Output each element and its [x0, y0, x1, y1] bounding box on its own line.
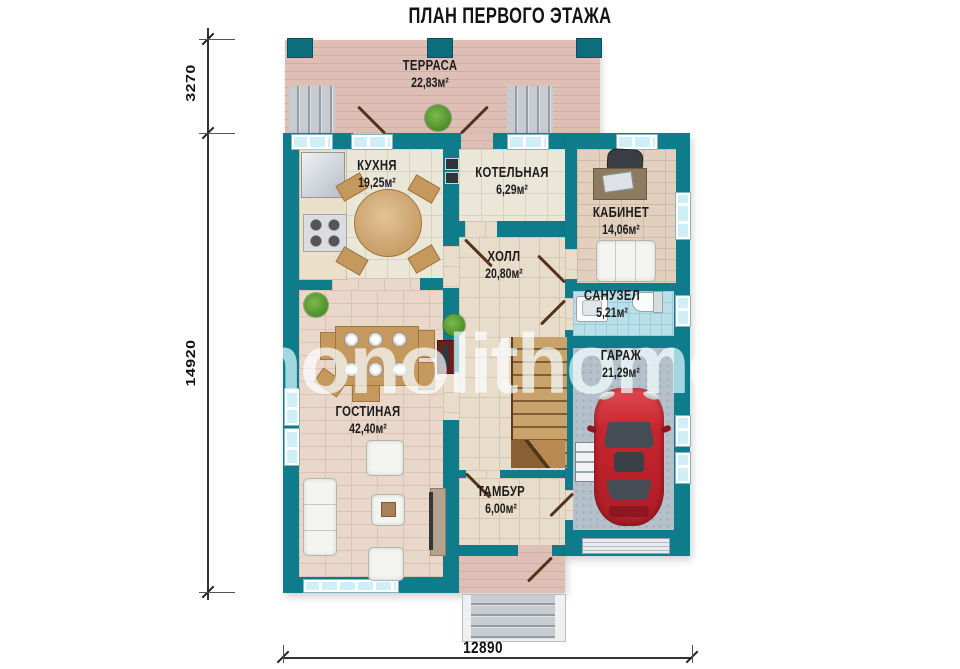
window	[675, 415, 691, 447]
office-sofa	[596, 240, 656, 282]
terrace-steps-right	[507, 86, 553, 133]
coffee-table-top	[381, 502, 396, 517]
dimension-line-left	[207, 28, 209, 600]
window	[675, 192, 691, 240]
room-label-boiler: КОТЕЛЬНАЯ6,29м²	[457, 165, 566, 198]
kitchen-table	[354, 189, 422, 257]
door-gap-boiler	[465, 221, 497, 237]
stove	[303, 214, 347, 252]
page-title: ПЛАН ПЕРВОГО ЭТАЖА	[338, 3, 683, 29]
armchair	[368, 547, 404, 581]
window	[675, 452, 691, 484]
dimension-extension	[199, 592, 235, 593]
dimension-extension	[283, 645, 284, 663]
car-windshield	[603, 422, 655, 448]
door-gap-office	[565, 249, 577, 279]
terrace-steps-left	[289, 86, 335, 133]
room-label-hall: ХОЛЛ20,80м²	[449, 249, 558, 282]
room-label-garage: ГАРАЖ21,29м²	[566, 348, 675, 381]
window	[303, 579, 399, 593]
window	[507, 134, 549, 150]
dimension-label-12890: 12890	[435, 638, 531, 658]
dimension-extension	[692, 645, 693, 663]
terrace-post	[427, 38, 453, 58]
door-gap-vestibule-porch	[518, 545, 552, 556]
plant-icon	[425, 105, 451, 131]
terrace-post	[287, 38, 313, 58]
plant-icon	[304, 293, 328, 317]
armchair	[366, 440, 404, 476]
watermark: monolithome	[0, 316, 960, 413]
garage-door	[582, 538, 670, 554]
window	[351, 134, 393, 150]
room-label-bathroom: САНУЗЕЛ5,21м²	[557, 288, 666, 321]
sofa	[303, 478, 337, 556]
car-rear-window	[605, 480, 653, 500]
porch-steps-frame	[462, 594, 566, 642]
dimension-label-3270: 3270	[185, 53, 199, 113]
staircase-winder	[511, 440, 565, 468]
room-label-kitchen: КУХНЯ19,25м²	[322, 158, 431, 191]
floor-plan-canvas: ПЛАН ПЕРВОГО ЭТАЖА	[0, 0, 960, 669]
porch-steps	[471, 595, 555, 639]
terrace-post	[576, 38, 602, 58]
window	[291, 134, 333, 150]
window	[284, 428, 300, 466]
dimension-extension	[199, 133, 235, 134]
tv-screen	[429, 492, 433, 550]
window	[616, 134, 658, 150]
car-trunk	[609, 506, 649, 517]
room-label-office: КАБИНЕТ14,06м²	[566, 205, 675, 238]
room-label-vestibule: ТАМБУР6,00м²	[446, 484, 555, 517]
room-label-terrace: ТЕРРАСА22,83м²	[375, 58, 484, 91]
dimension-extension	[199, 39, 235, 40]
door-gap-terrace-boiler	[461, 133, 493, 149]
car-sunroof	[614, 452, 644, 472]
room-label-living: ГОСТИНАЯ42,40м²	[313, 404, 422, 437]
